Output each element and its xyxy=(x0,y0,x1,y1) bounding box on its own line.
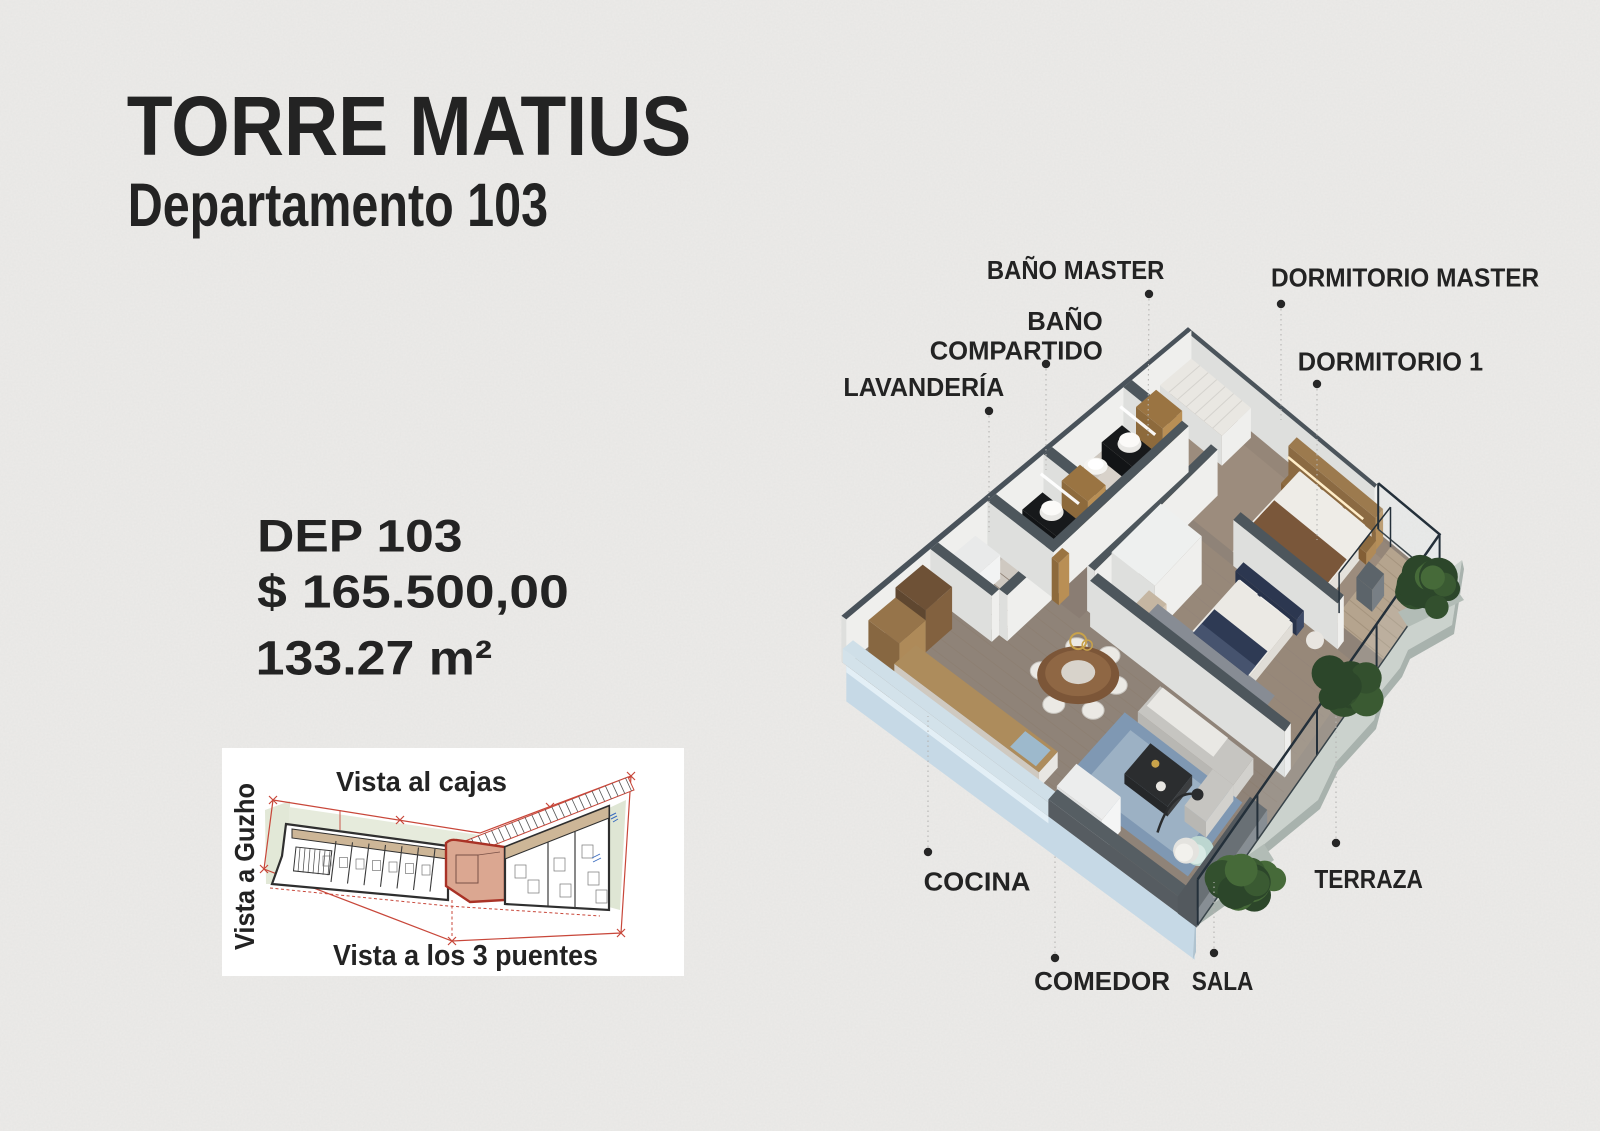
svg-text:TERRAZA: TERRAZA xyxy=(1314,864,1423,894)
svg-text:BAÑO MASTER: BAÑO MASTER xyxy=(987,255,1165,285)
svg-text:Vista a Guzho: Vista a Guzho xyxy=(229,783,260,950)
svg-text:DORMITORIO MASTER: DORMITORIO MASTER xyxy=(1271,262,1539,292)
svg-text:SALA: SALA xyxy=(1192,966,1254,996)
svg-text:COMEDOR: COMEDOR xyxy=(1034,966,1170,996)
svg-text:TORRE MATIUS: TORRE MATIUS xyxy=(127,79,692,173)
svg-text:$ 165.500,00: $ 165.500,00 xyxy=(257,566,569,618)
svg-text:DORMITORIO 1: DORMITORIO 1 xyxy=(1298,347,1483,377)
svg-text:DEP 103: DEP 103 xyxy=(257,510,462,561)
svg-text:BAÑO: BAÑO xyxy=(1027,306,1103,336)
svg-text:Vista al cajas: Vista al cajas xyxy=(336,766,507,797)
svg-text:133.27 m²: 133.27 m² xyxy=(256,633,493,686)
svg-text:COMPARTIDO: COMPARTIDO xyxy=(930,336,1103,366)
svg-text:Departamento 103: Departamento 103 xyxy=(128,171,548,239)
svg-text:Vista a los 3 puentes: Vista a los 3 puentes xyxy=(333,940,598,972)
svg-text:COCINA: COCINA xyxy=(924,867,1031,897)
svg-text:LAVANDERÍA: LAVANDERÍA xyxy=(843,372,1004,402)
